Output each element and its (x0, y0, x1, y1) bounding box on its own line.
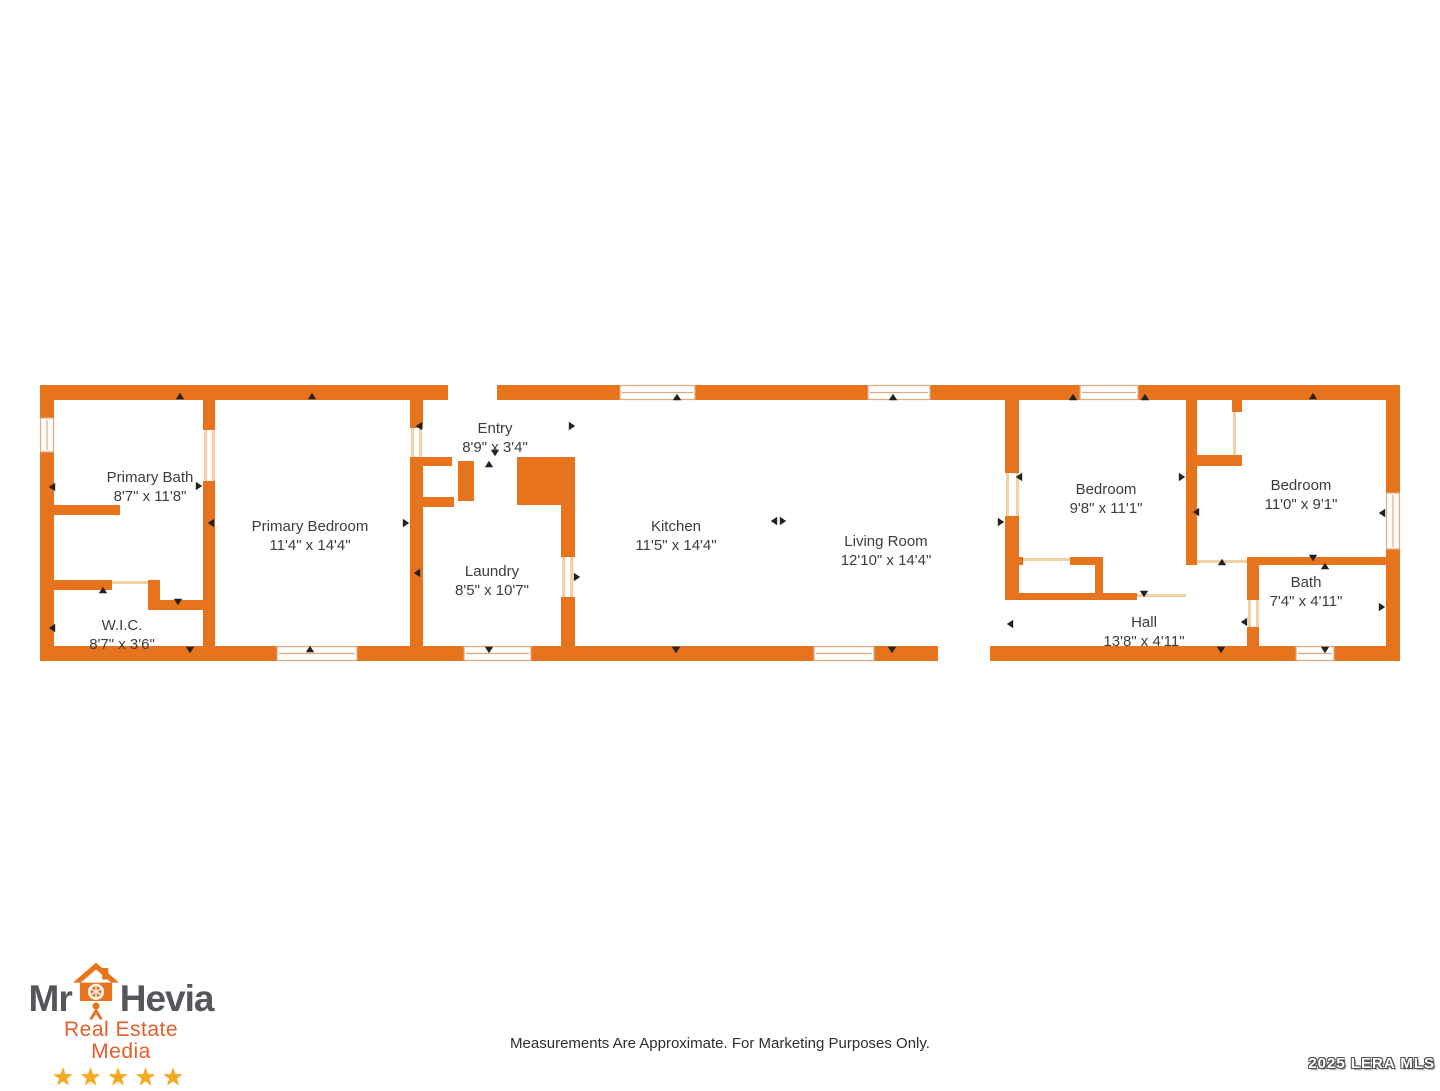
logo-text-mr: Mr (29, 982, 72, 1016)
room-dimensions: 12'10" x 14'4" (841, 551, 932, 570)
room-dimensions: 11'5" x 14'4" (635, 536, 716, 555)
room-dimensions: 13'8" x 4'11" (1103, 632, 1184, 651)
room-label: Primary Bedroom 11'4" x 14'4" (252, 517, 369, 555)
room-name: Primary Bath (107, 468, 194, 487)
room-label: Hall 13'8" x 4'11" (1103, 613, 1184, 651)
room-label: Living Room 12'10" x 14'4" (841, 532, 932, 570)
room-name: Laundry (455, 562, 529, 581)
room-label: W.I.C. 8'7" x 3'6" (89, 616, 155, 654)
room-name: Entry (462, 419, 528, 438)
mls-watermark: 2025 LERA MLS (1308, 1055, 1435, 1072)
room-dimensions: 7'4" x 4'11" (1270, 592, 1343, 611)
house-camera-icon (73, 962, 119, 1020)
logo-wordmark: Mr Hevia (33, 960, 209, 1016)
room-dimensions: 9'8" x 11'1" (1070, 499, 1143, 518)
room-name: Primary Bedroom (252, 517, 369, 536)
disclaimer-text: Measurements Are Approximate. For Market… (0, 1035, 1440, 1052)
room-name: W.I.C. (89, 616, 155, 635)
walls (40, 385, 1400, 661)
five-star-rating: ★★★★★ (33, 1065, 209, 1091)
room-dimensions: 11'4" x 14'4" (252, 536, 369, 555)
logo-text-hevia: Hevia (120, 982, 214, 1016)
room-name: Bedroom (1265, 476, 1338, 495)
room-label: Bedroom 11'0" x 9'1" (1265, 476, 1338, 514)
room-name: Hall (1103, 613, 1184, 632)
room-label: Kitchen 11'5" x 14'4" (635, 517, 716, 555)
room-label: Entry 8'9" x 3'4" (462, 419, 528, 457)
company-logo: Mr Hevia Real Estate Media ★★★★★ (33, 960, 209, 1091)
room-label: Laundry 8'5" x 10'7" (455, 562, 529, 600)
room-dimensions: 8'7" x 3'6" (89, 635, 155, 654)
room-dimensions: 8'5" x 10'7" (455, 581, 529, 600)
room-dimensions: 8'7" x 11'8" (107, 487, 194, 506)
room-name: Kitchen (635, 517, 716, 536)
floorplan-drawing (0, 0, 1440, 1080)
wall-openings (448, 385, 990, 661)
room-dimensions: 11'0" x 9'1" (1265, 495, 1338, 514)
room-label: Primary Bath 8'7" x 11'8" (107, 468, 194, 506)
room-name: Bath (1270, 573, 1343, 592)
door-swing-arrows (49, 393, 1385, 653)
room-name: Living Room (841, 532, 932, 551)
room-name: Bedroom (1070, 480, 1143, 499)
room-dimensions: 8'9" x 3'4" (462, 438, 528, 457)
room-label: Bath 7'4" x 4'11" (1270, 573, 1343, 611)
room-label: Bedroom 9'8" x 11'1" (1070, 480, 1143, 518)
